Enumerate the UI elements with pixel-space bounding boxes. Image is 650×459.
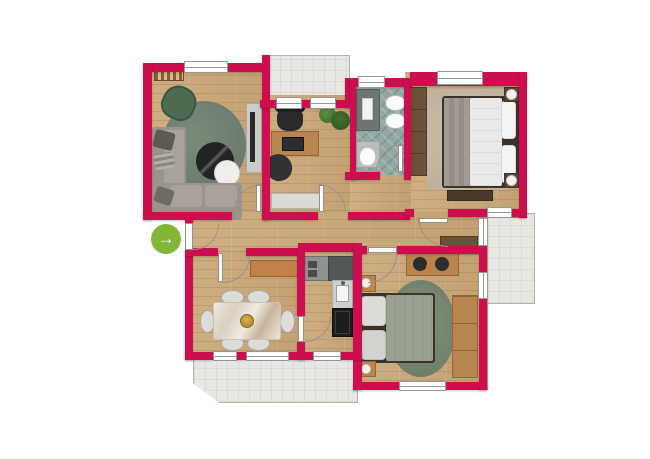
bed-duvet — [386, 295, 433, 361]
wall-segment — [345, 172, 380, 180]
sofa-pillow — [153, 151, 175, 170]
decor-bowl — [240, 314, 254, 328]
wall-segment — [353, 243, 362, 390]
kitchen-sink-basin — [336, 285, 349, 302]
dining-sideboard — [250, 260, 298, 277]
office-door — [319, 185, 324, 212]
bed-bench — [447, 190, 493, 201]
wall-segment — [350, 78, 356, 180]
dining-chair — [280, 310, 295, 333]
window — [437, 71, 483, 85]
toilet-bowl — [359, 147, 376, 166]
entrance-arrow-glyph: → — [158, 229, 175, 249]
wall-segment — [185, 352, 213, 360]
wall-segment — [298, 243, 358, 252]
sink — [385, 95, 406, 111]
wardrobe — [452, 295, 478, 378]
window — [358, 76, 385, 88]
window — [399, 381, 446, 391]
bottom-terrace — [193, 359, 358, 403]
faucet — [341, 281, 345, 285]
window — [478, 272, 488, 299]
plant — [331, 111, 350, 130]
lamp — [506, 89, 517, 100]
main-bedroom-door — [419, 218, 448, 223]
bed-blanket — [444, 98, 472, 186]
window — [213, 351, 237, 361]
entrance-door — [185, 223, 193, 250]
wall-segment — [404, 78, 411, 180]
window — [276, 97, 302, 109]
wall-segment — [297, 252, 305, 316]
pillow — [501, 101, 516, 139]
stool — [413, 257, 427, 271]
cooktop-burner — [308, 261, 317, 268]
sofa-cushion — [205, 185, 237, 207]
wall-segment — [246, 248, 302, 256]
window — [184, 61, 228, 73]
second-bedroom-door — [368, 247, 397, 253]
wall-segment — [260, 100, 355, 108]
office-sideboard — [271, 193, 323, 209]
wall-segment — [341, 352, 362, 360]
wall-segment — [185, 250, 193, 360]
wall-segment — [448, 209, 489, 217]
sofa-cushion — [170, 185, 202, 207]
wall-segment — [353, 382, 399, 390]
window — [310, 97, 336, 109]
wall-segment — [519, 72, 527, 218]
kitchen-door — [298, 316, 304, 342]
wall-segment — [397, 246, 487, 254]
wall-segment — [479, 297, 487, 390]
wardrobe — [410, 87, 427, 176]
kitchen-counter-dark — [328, 256, 354, 281]
wall-segment — [348, 212, 410, 220]
entrance-arrow-icon: → — [151, 224, 181, 254]
bed-duvet — [470, 98, 502, 186]
bathroom-door — [398, 145, 403, 172]
lamp — [361, 364, 371, 374]
desk-decor — [426, 263, 434, 271]
oven-door — [335, 311, 350, 334]
lamp — [506, 175, 517, 186]
wall-segment — [512, 209, 527, 217]
wall-segment — [479, 254, 487, 274]
laptop — [282, 137, 304, 151]
wall-segment — [289, 352, 313, 360]
kitchen-counter — [303, 256, 330, 281]
pillow — [361, 296, 386, 326]
shower-tray — [362, 98, 373, 120]
sink — [385, 113, 406, 129]
balcony-door — [487, 207, 512, 218]
wall-segment — [262, 55, 270, 103]
balcony-door — [478, 218, 488, 246]
tv-screen — [250, 112, 255, 162]
wall-segment — [262, 100, 270, 220]
wall-segment — [237, 352, 246, 360]
cooktop-burner — [308, 270, 317, 277]
wall-segment — [262, 212, 318, 220]
right-balcony — [487, 213, 535, 304]
living-room-door — [256, 185, 261, 212]
window — [246, 351, 289, 361]
pillow — [361, 330, 386, 360]
dining-door — [218, 253, 223, 282]
floor-plan: → — [0, 0, 650, 459]
stool — [435, 257, 449, 271]
wall-segment — [143, 63, 152, 220]
wall-segment — [405, 209, 414, 217]
window — [313, 351, 341, 361]
